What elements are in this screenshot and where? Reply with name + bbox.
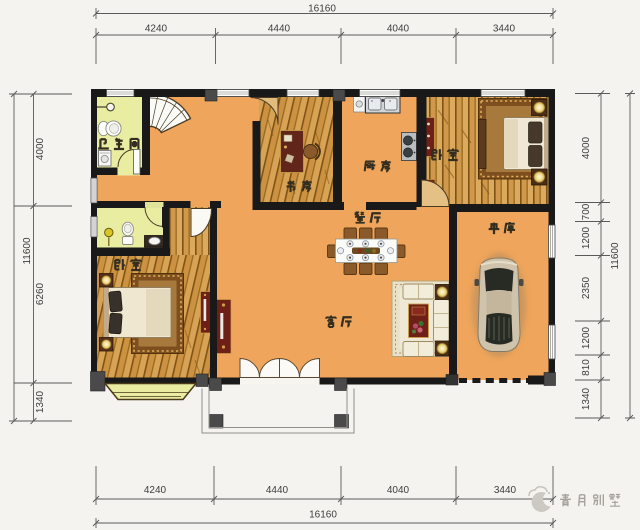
svg-text:4040: 4040	[387, 24, 410, 35]
svg-text:2350: 2350	[581, 276, 592, 299]
svg-text:1340: 1340	[35, 390, 46, 413]
svg-text:4040: 4040	[387, 485, 410, 496]
svg-text:4240: 4240	[144, 485, 167, 496]
svg-text:810: 810	[581, 359, 592, 376]
svg-text:3440: 3440	[494, 485, 517, 496]
svg-text:6260: 6260	[35, 282, 46, 305]
svg-text:16160: 16160	[309, 510, 337, 521]
svg-text:1200: 1200	[581, 326, 592, 349]
svg-text:11600: 11600	[610, 242, 621, 270]
svg-text:3440: 3440	[493, 24, 516, 35]
svg-text:4440: 4440	[266, 485, 289, 496]
svg-text:700: 700	[581, 203, 592, 220]
svg-text:11600: 11600	[22, 237, 33, 265]
svg-text:16160: 16160	[308, 4, 336, 15]
svg-text:4240: 4240	[145, 24, 168, 35]
svg-text:4000: 4000	[581, 136, 592, 159]
svg-text:1340: 1340	[581, 387, 592, 410]
svg-text:4440: 4440	[268, 24, 291, 35]
svg-text:4000: 4000	[35, 137, 46, 160]
svg-text:1200: 1200	[581, 226, 592, 249]
